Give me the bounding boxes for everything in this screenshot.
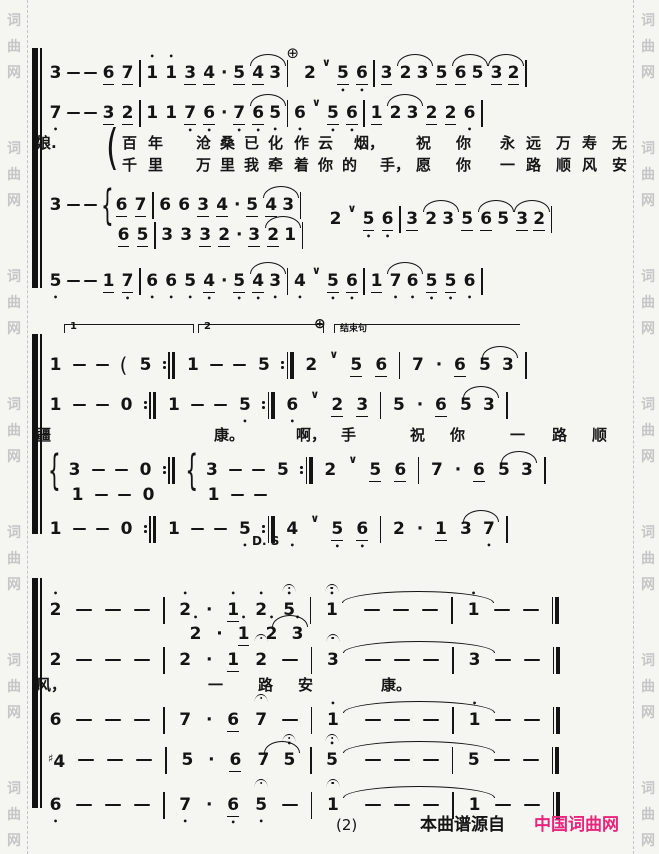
sheet-music-page: 词曲网词曲网词曲网词曲网词曲网词曲网词曲网 词曲网词曲网词曲网词曲网词曲网词曲网… bbox=[0, 0, 659, 854]
source-site-link[interactable]: 中国词曲网 bbox=[534, 810, 619, 835]
dash-sustain bbox=[73, 364, 86, 367]
note: 6 bbox=[48, 709, 63, 731]
note-digit: 5 bbox=[445, 270, 457, 293]
dash-sustain bbox=[67, 280, 80, 283]
note: 6 bbox=[228, 749, 243, 772]
lyric-word: 愿 bbox=[416, 154, 431, 175]
note-digit: 3 bbox=[50, 62, 62, 84]
watermark-char: 词 bbox=[636, 138, 659, 158]
octave-dot-low: • bbox=[410, 295, 415, 301]
dash-sustain bbox=[282, 804, 298, 807]
note-digit: 1 bbox=[238, 623, 250, 646]
dash-sustain bbox=[282, 719, 298, 722]
page-number: (2) bbox=[336, 816, 357, 834]
note: 7 bbox=[133, 194, 148, 217]
slur-arc bbox=[343, 641, 495, 653]
note-digit: 1 bbox=[146, 102, 158, 124]
note-digit: 2 bbox=[50, 649, 62, 671]
music-system-3: •2•2·•1•2•5•1•1•2·•1•2•322·1233风，一路安康。67… bbox=[30, 572, 638, 812]
octave-dot-low: • bbox=[169, 295, 174, 301]
octave-dot-low: • bbox=[242, 543, 247, 549]
note-digit: 5 bbox=[233, 62, 245, 85]
dash-sustain bbox=[191, 404, 204, 407]
note-digit: 7 bbox=[184, 102, 196, 125]
note-digit: 2 bbox=[218, 224, 230, 247]
repeat-barline bbox=[144, 516, 156, 543]
note: 2 bbox=[328, 208, 343, 230]
breath-mark-icon: ∨ bbox=[348, 453, 358, 466]
note-digit: 6 bbox=[375, 354, 387, 377]
note-digit: 2 bbox=[393, 518, 405, 540]
note: •5 bbox=[325, 102, 340, 125]
dash-sustain bbox=[394, 759, 410, 762]
note: 2 bbox=[48, 649, 63, 671]
note: 2 bbox=[254, 649, 269, 671]
dash-sustain bbox=[394, 804, 410, 807]
note-digit: 5 bbox=[327, 102, 339, 125]
octave-dot-high: • bbox=[169, 54, 174, 60]
lyric-word: 路 bbox=[258, 674, 273, 695]
barline bbox=[363, 268, 365, 295]
octave-dot-low: • bbox=[467, 295, 472, 301]
note-digit: 1 bbox=[208, 484, 220, 506]
dash-sustain bbox=[229, 469, 242, 472]
dash-sustain bbox=[73, 404, 86, 407]
octave-dot-low: • bbox=[290, 543, 295, 549]
note-digit: 6 bbox=[50, 709, 62, 731]
slur-arc bbox=[387, 262, 423, 274]
watermark-char: 网 bbox=[2, 830, 26, 850]
watermark-char: 网 bbox=[2, 702, 26, 722]
slur-arc bbox=[514, 200, 550, 212]
note-digit: 1 bbox=[168, 518, 180, 540]
note-digit: 5 bbox=[393, 394, 405, 416]
octave-dot-low: • bbox=[486, 543, 491, 549]
note-digit: 3 bbox=[69, 459, 81, 481]
watermark-char: 网 bbox=[2, 574, 26, 594]
watermark-char: 词 bbox=[2, 10, 26, 30]
breath-mark-icon: ∨ bbox=[311, 264, 321, 277]
dash-sustain bbox=[214, 404, 227, 407]
octave-dot-low: • bbox=[125, 296, 130, 302]
open-paren: ( bbox=[119, 353, 128, 377]
octave-dot-high: • bbox=[329, 741, 334, 747]
lyric-word: 安 bbox=[298, 674, 313, 695]
note-digit: 2 bbox=[50, 599, 62, 621]
final-barline bbox=[552, 597, 559, 624]
dash-sustain bbox=[118, 494, 131, 497]
barline bbox=[506, 392, 508, 419]
note: 1 bbox=[433, 518, 448, 541]
dash-sustain bbox=[134, 804, 150, 807]
barline bbox=[399, 352, 401, 379]
note: 0 bbox=[141, 484, 156, 506]
dash-sustain bbox=[365, 659, 381, 662]
barline bbox=[287, 268, 289, 295]
note-digit: 6 bbox=[464, 270, 476, 292]
note: 5 bbox=[434, 62, 449, 85]
note-digit: 2 bbox=[255, 649, 267, 671]
dash-sustain bbox=[364, 609, 380, 612]
coda-icon: ⊕ bbox=[286, 46, 298, 61]
note-digit: 3 bbox=[180, 224, 192, 246]
sharp-icon: ♯ bbox=[48, 752, 53, 765]
watermark-char: 词 bbox=[636, 650, 659, 670]
note-digit: 7 bbox=[179, 709, 191, 731]
watermark-char: 词 bbox=[2, 778, 26, 798]
lyric-word: 一 bbox=[208, 674, 223, 695]
note: •4 bbox=[202, 270, 217, 293]
barline bbox=[310, 747, 312, 774]
note-digit: 6 bbox=[50, 794, 62, 816]
note-digit: 7 bbox=[431, 459, 443, 481]
note: •7 bbox=[232, 102, 247, 125]
lyric-word: 路 bbox=[552, 424, 567, 445]
note: 7 bbox=[254, 709, 269, 731]
dash-sustain bbox=[105, 804, 121, 807]
octave-dot-low: • bbox=[335, 544, 340, 550]
note-digit: 7 bbox=[255, 709, 267, 731]
note-digit: 5 bbox=[233, 270, 245, 293]
dash-sustain bbox=[365, 804, 381, 807]
repeat-barline bbox=[281, 352, 293, 379]
watermark-char: 网 bbox=[636, 830, 659, 850]
octave-dot-low: • bbox=[297, 295, 302, 301]
lyrics-line: 疆康。啊，手祝你一路顺 bbox=[30, 424, 638, 444]
note: 7 bbox=[120, 62, 135, 85]
slur-arc bbox=[452, 54, 488, 66]
chord-brace: { bbox=[48, 445, 57, 495]
note: •5 bbox=[237, 518, 252, 540]
augmentation-dot: · bbox=[206, 710, 213, 730]
note: 5 bbox=[245, 194, 260, 217]
music-line: 22·1233 bbox=[48, 645, 573, 675]
lyric-word: 顺 bbox=[556, 154, 571, 175]
note: 1 bbox=[226, 649, 241, 672]
note: 2 bbox=[391, 518, 406, 540]
watermark-char: 曲 bbox=[2, 676, 26, 696]
slur-arc bbox=[250, 94, 286, 106]
note: 7 bbox=[429, 459, 444, 481]
lyric-word: 万 bbox=[196, 154, 211, 175]
note-digit: 2 bbox=[330, 208, 342, 230]
watermark-char: 词 bbox=[2, 138, 26, 158]
watermark-char: 曲 bbox=[636, 548, 659, 568]
augmentation-dot: · bbox=[206, 795, 213, 815]
note-digit: 6 bbox=[435, 394, 447, 417]
note: •5 bbox=[335, 62, 350, 85]
octave-dot-low: • bbox=[330, 296, 335, 302]
watermark-char: 曲 bbox=[636, 676, 659, 696]
note: •6 bbox=[344, 270, 359, 293]
note-digit: 7 bbox=[122, 62, 134, 85]
note-digit: 3 bbox=[206, 459, 218, 481]
slur-arc bbox=[423, 200, 459, 212]
note-digit: 5 bbox=[246, 194, 258, 217]
watermark-text: 词曲网 bbox=[636, 4, 659, 88]
dash-sustain bbox=[84, 204, 97, 207]
note-digit: 2 bbox=[190, 623, 202, 645]
note-digit: 1 bbox=[50, 518, 62, 540]
watermark-char: 网 bbox=[2, 190, 26, 210]
note-digit: 6 bbox=[146, 270, 158, 292]
watermark-right: 词曲网词曲网词曲网词曲网词曲网词曲网词曲网 bbox=[636, 0, 659, 854]
note: 2 bbox=[424, 102, 439, 125]
lyric-word: 桑 bbox=[220, 132, 235, 153]
note-digit: 1 bbox=[187, 354, 199, 376]
watermark-text: 词曲网 bbox=[636, 388, 659, 472]
note: 5 bbox=[138, 354, 153, 376]
note-digit: 5 bbox=[363, 208, 375, 231]
barline bbox=[163, 707, 165, 734]
dash-sustain bbox=[96, 364, 109, 367]
octave-dot-low: • bbox=[183, 819, 188, 825]
watermark-text: 词曲网 bbox=[2, 644, 26, 728]
dash-sustain bbox=[282, 659, 298, 662]
note: 2 bbox=[178, 649, 193, 671]
note: 5 bbox=[460, 208, 475, 231]
dash-sustain bbox=[394, 719, 410, 722]
note: •6 bbox=[344, 102, 359, 125]
slur-arc bbox=[343, 786, 495, 798]
music-line: 1(5152∨567·653 bbox=[48, 350, 537, 380]
note: 3 bbox=[325, 649, 340, 671]
note: ♯4 bbox=[48, 748, 65, 773]
note: 6 bbox=[114, 194, 129, 217]
note: 2 bbox=[217, 224, 232, 247]
slur-arc bbox=[482, 346, 518, 358]
note-digit: 6 bbox=[346, 270, 358, 293]
barline bbox=[163, 792, 165, 819]
note: 1 bbox=[166, 394, 181, 416]
octave-dot-low: • bbox=[429, 296, 434, 302]
note-digit: 7 bbox=[50, 102, 62, 124]
dash-sustain bbox=[84, 112, 97, 115]
dash-sustain bbox=[393, 609, 409, 612]
watermark-text: 词曲网 bbox=[2, 516, 26, 600]
note-digit: 3 bbox=[161, 224, 173, 246]
note: 4 bbox=[215, 194, 230, 217]
note: •2 bbox=[48, 599, 63, 621]
note-digit: 7 bbox=[179, 794, 191, 816]
note-digit: 6 bbox=[229, 749, 241, 772]
dash-sustain bbox=[423, 719, 439, 722]
dash-sustain bbox=[365, 719, 381, 722]
dash-sustain bbox=[95, 494, 108, 497]
note: 3 bbox=[355, 394, 370, 417]
final-barline bbox=[553, 707, 560, 734]
note: 5 bbox=[232, 62, 247, 85]
dash-sustain bbox=[495, 804, 511, 807]
lyric-word: 远 bbox=[526, 132, 541, 153]
note: •1 bbox=[325, 709, 340, 731]
lyrics-line: 风，一路安康。 bbox=[30, 674, 638, 694]
note-digit: 5 bbox=[137, 224, 149, 247]
octave-dot-low: • bbox=[237, 296, 242, 302]
note: 5 bbox=[256, 354, 271, 376]
octave-dot-low: • bbox=[340, 88, 345, 94]
note-digit: 7 bbox=[233, 102, 245, 125]
note-digit: 5 bbox=[277, 459, 289, 481]
lyric-word: 云 bbox=[318, 132, 333, 153]
barline bbox=[481, 100, 483, 127]
lyric-word: 手 bbox=[341, 424, 356, 445]
augmentation-dot: · bbox=[208, 750, 215, 770]
note-digit: 2 bbox=[122, 102, 134, 125]
note: •2 bbox=[188, 623, 203, 645]
note: 2 bbox=[302, 62, 317, 84]
dash-sustain bbox=[67, 112, 80, 115]
dash-sustain bbox=[365, 759, 381, 762]
slur-arc bbox=[463, 510, 499, 522]
barline bbox=[165, 747, 167, 774]
ending-phrase-bracket: 结束句 bbox=[334, 324, 520, 333]
watermark-char: 网 bbox=[2, 62, 26, 82]
note-digit: 6 bbox=[356, 518, 368, 541]
note: 1 bbox=[48, 354, 63, 376]
note-digit: 1 bbox=[371, 102, 383, 125]
note-digit: 4 bbox=[294, 270, 306, 292]
octave-dot-high: • bbox=[269, 615, 274, 621]
note-digit: ♯4 bbox=[48, 748, 65, 773]
watermark-text: 词曲网 bbox=[636, 516, 659, 600]
watermark-char: 网 bbox=[636, 702, 659, 722]
barline bbox=[311, 647, 313, 674]
note-digit: 3 bbox=[406, 208, 418, 231]
note: •6 bbox=[164, 270, 179, 292]
lyric-word: 烟， bbox=[354, 132, 384, 153]
note: 2 bbox=[304, 354, 319, 376]
note-digit: 2 bbox=[255, 599, 267, 621]
lyric-word: 你 bbox=[456, 154, 471, 175]
note: •5 bbox=[443, 270, 458, 293]
music-line: 653332·321 bbox=[116, 220, 307, 250]
barline bbox=[551, 206, 553, 233]
dash-sustain bbox=[210, 364, 223, 367]
note: •6 bbox=[292, 102, 307, 124]
note-digit: 0 bbox=[121, 394, 133, 416]
barline bbox=[163, 647, 165, 674]
octave-dot-low: • bbox=[360, 544, 365, 550]
barline bbox=[287, 60, 289, 87]
note: •5 bbox=[254, 794, 269, 816]
note: •6 bbox=[380, 208, 395, 231]
note: 3 bbox=[67, 459, 82, 481]
watermark-char: 词 bbox=[636, 394, 659, 414]
watermark-char: 曲 bbox=[2, 164, 26, 184]
breath-mark-icon: ∨ bbox=[310, 512, 320, 525]
lyric-word: 已 bbox=[244, 132, 259, 153]
note-digit: 0 bbox=[140, 459, 152, 481]
note-digit: 2 bbox=[331, 394, 343, 417]
note: 3 bbox=[48, 62, 63, 84]
note: •5 bbox=[361, 208, 376, 231]
note: 5 bbox=[391, 394, 406, 416]
octave-dot-low: • bbox=[53, 295, 58, 301]
note-digit: 5 bbox=[426, 270, 438, 293]
note: •4 bbox=[292, 270, 307, 292]
note-digit: 5 bbox=[436, 62, 448, 85]
note: 6 bbox=[471, 459, 486, 482]
note: 3 bbox=[379, 62, 394, 85]
octave-dot-low: • bbox=[231, 820, 236, 826]
barline bbox=[506, 516, 508, 543]
music-line: 101•5•6∨235·653 bbox=[48, 390, 518, 420]
note-digit: 6 bbox=[286, 394, 298, 416]
dash-sustain bbox=[76, 609, 92, 612]
note-digit: 0 bbox=[143, 484, 155, 506]
note-digit: 1 bbox=[50, 354, 62, 376]
watermark-char: 词 bbox=[2, 394, 26, 414]
watermark-left: 词曲网词曲网词曲网词曲网词曲网词曲网词曲网 bbox=[2, 0, 26, 854]
barline bbox=[481, 268, 483, 295]
lyric-word: 百 bbox=[122, 132, 137, 153]
note-digit: 6 bbox=[116, 194, 128, 217]
dash-sustain bbox=[423, 804, 439, 807]
watermark-char: 网 bbox=[636, 318, 659, 338]
note: •1 bbox=[324, 599, 339, 621]
dash-sustain bbox=[136, 759, 152, 762]
lyric-word: 作 bbox=[294, 132, 309, 153]
octave-dot-low: • bbox=[448, 296, 453, 302]
lyric-word: 顺 bbox=[592, 424, 607, 445]
dash-sustain bbox=[524, 804, 540, 807]
note-digit: 3 bbox=[327, 649, 339, 671]
note-digit: 1 bbox=[103, 270, 115, 293]
note: 3 bbox=[196, 194, 211, 217]
dash-sustain bbox=[231, 494, 244, 497]
music-line: 67·67•1•1 bbox=[48, 705, 573, 735]
lyric-word: 你 bbox=[318, 154, 333, 175]
bracket-label: 1 bbox=[70, 321, 77, 332]
note-digit: 6 bbox=[103, 62, 115, 85]
note: 1 bbox=[206, 484, 221, 506]
repeat-barline bbox=[144, 392, 156, 419]
note-digit: 6 bbox=[454, 354, 466, 377]
augmentation-dot: · bbox=[416, 519, 423, 539]
note: •6 bbox=[285, 394, 300, 416]
note: 6 bbox=[226, 709, 241, 732]
dash-sustain bbox=[134, 659, 150, 662]
note: •6 bbox=[462, 270, 477, 292]
barline bbox=[139, 100, 141, 127]
fermata-icon bbox=[326, 779, 339, 787]
augmentation-dot: · bbox=[221, 103, 228, 123]
note-digit: 6 bbox=[178, 194, 190, 216]
note-digit: 2 bbox=[305, 354, 317, 376]
octave-dot-high: • bbox=[193, 615, 198, 621]
lyric-word: 万 bbox=[556, 132, 571, 153]
watermark-char: 曲 bbox=[2, 804, 26, 824]
slur-arc bbox=[501, 451, 537, 463]
watermark-char: 网 bbox=[2, 446, 26, 466]
note-digit: 4 bbox=[203, 270, 215, 293]
note-digit: 1 bbox=[327, 794, 339, 816]
note-digit: 3 bbox=[50, 194, 62, 216]
note-digit: 1 bbox=[227, 649, 239, 672]
coda-icon: ⊕ bbox=[314, 316, 326, 332]
repeat-barline bbox=[163, 352, 175, 379]
octave-dot-high: • bbox=[53, 591, 58, 597]
note-digit: 6 bbox=[356, 62, 368, 85]
barline bbox=[399, 206, 401, 233]
note: •5 bbox=[48, 270, 63, 292]
barline bbox=[300, 192, 302, 219]
dash-sustain bbox=[84, 72, 97, 75]
note-digit: 1 bbox=[326, 599, 338, 621]
note-digit: 6 bbox=[473, 459, 485, 482]
watermark-char: 曲 bbox=[2, 36, 26, 56]
